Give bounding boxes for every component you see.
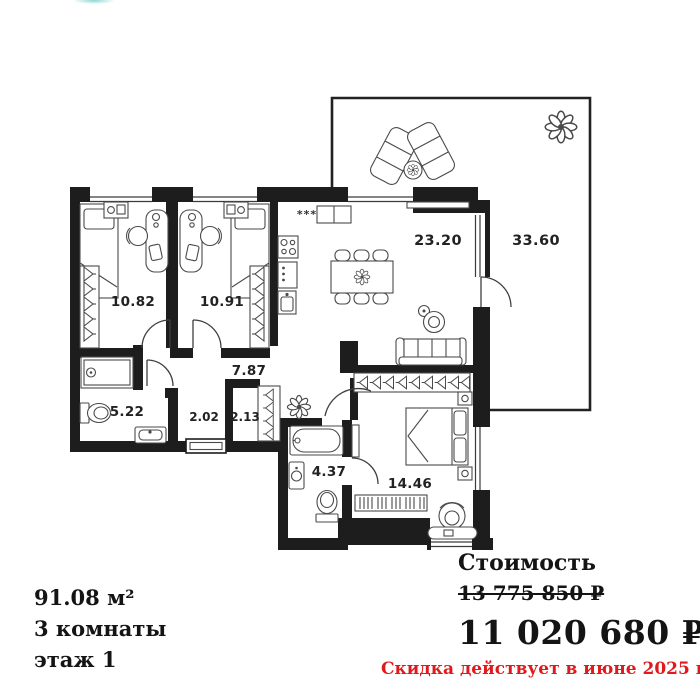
listing-card: 10.82 10.91 23.20 33.60 7.87 5.22 2.02 2… [0, 0, 700, 700]
wardrobe-room [258, 386, 280, 441]
floor-plan: 10.82 10.91 23.20 33.60 7.87 5.22 2.02 2… [0, 0, 700, 560]
nightstand-icon [458, 392, 472, 405]
dining-table-icon [331, 250, 393, 304]
sink-icon [135, 427, 166, 443]
area-value: 91.08 м² [34, 582, 166, 613]
double-bed-icon [406, 408, 468, 465]
rooms-count: 3 комнаты [34, 613, 166, 644]
discount-note: Скидка действует в июне 2025 г. [381, 659, 700, 679]
window [193, 187, 257, 202]
coffee-table-icon [404, 161, 422, 179]
room-label-bedroom2: 10.91 [200, 294, 244, 310]
room-label-bedroom1: 10.82 [111, 294, 155, 310]
floor-number: этаж 1 [34, 644, 166, 675]
toilet-icon [80, 403, 111, 423]
wardrobe-icon [354, 373, 470, 392]
room-label-bathroom1: 5.22 [110, 404, 145, 420]
armchair-icon [439, 503, 465, 529]
plant-icon [287, 395, 310, 418]
bathtub-icon [290, 426, 343, 455]
old-price: 13 775 850 ₽ [458, 580, 700, 606]
toilet-icon [316, 491, 338, 523]
window [471, 213, 485, 277]
vanity-sink-icon [289, 462, 304, 489]
shower-icon [81, 357, 133, 388]
wardrobe-icon [250, 266, 269, 348]
window [431, 538, 472, 550]
bench-icon [428, 527, 477, 539]
room-label-hall: 7.87 [232, 363, 267, 379]
room-label-terrace: 33.60 [512, 233, 560, 249]
pricing-block: Стоимость 13 775 850 ₽ 11 020 680 ₽ [458, 550, 700, 652]
dresser-icon [355, 495, 427, 511]
entrance-door [186, 439, 226, 453]
nightstand-icon [458, 467, 472, 480]
room-label-bedroom3: 14.46 [388, 476, 432, 492]
sofa-icon [396, 338, 466, 365]
window [348, 187, 413, 202]
oven-cabinet-icon [278, 262, 297, 288]
desk-icon [146, 210, 168, 272]
current-price: 11 020 680 ₽ [458, 614, 700, 652]
stove-icon [278, 236, 298, 258]
room-label-closet: 2.02 [189, 410, 219, 424]
kitchen-sink-icon [278, 291, 296, 314]
room-label-wardrobe: 2.13 [230, 410, 260, 424]
wardrobe-icon [80, 266, 99, 348]
window-sill [407, 202, 469, 208]
desk-icon [180, 210, 202, 272]
plant-icon [545, 111, 577, 143]
window [90, 187, 152, 202]
apartment-summary: 91.08 м² 3 комнаты этаж 1 [34, 582, 166, 675]
vent-symbol: *** [297, 208, 317, 221]
window [471, 427, 485, 490]
room-label-living: 23.20 [414, 233, 462, 249]
price-heading: Стоимость [458, 550, 700, 576]
room-label-bathroom2: 4.37 [312, 464, 347, 480]
